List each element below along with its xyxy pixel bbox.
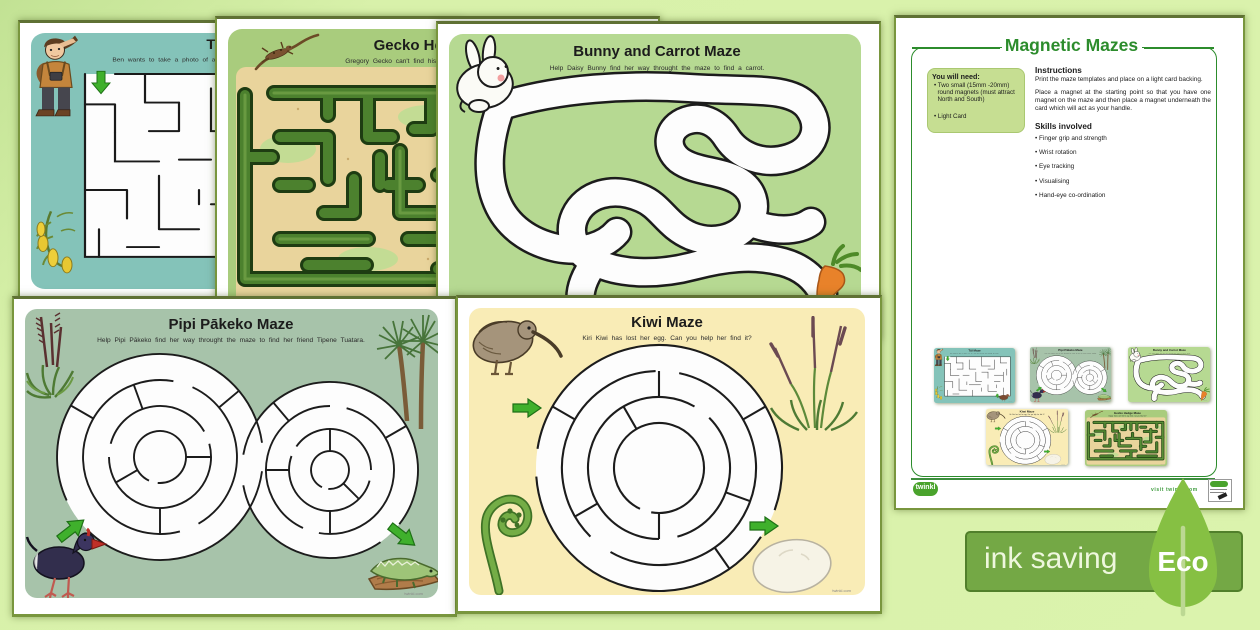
svg-text:Eco: Eco <box>1157 546 1208 577</box>
